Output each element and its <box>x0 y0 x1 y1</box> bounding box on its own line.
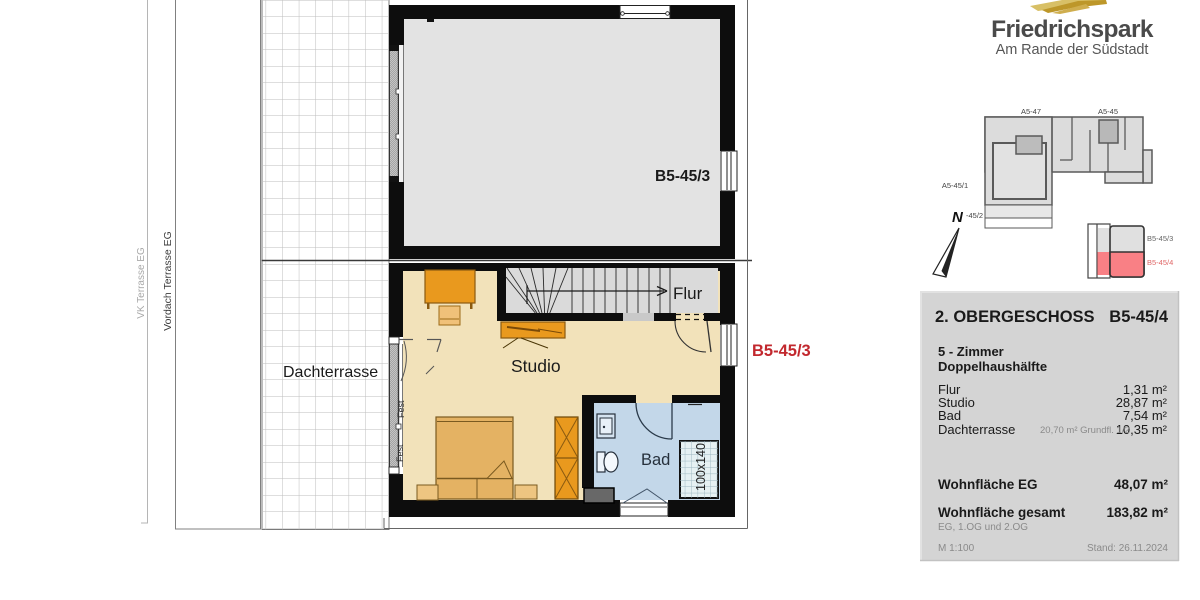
svg-text:A5-45: A5-45 <box>1098 107 1118 116</box>
svg-text:B5-45/4: B5-45/4 <box>1109 308 1169 326</box>
svg-text:A5-45/1: A5-45/1 <box>942 181 968 190</box>
svg-text:B5-45/3: B5-45/3 <box>752 342 811 360</box>
svg-text:M 1:100: M 1:100 <box>938 543 975 554</box>
svg-text:Studio: Studio <box>511 356 561 376</box>
svg-text:B5-45/4: B5-45/4 <box>1147 258 1173 267</box>
svg-text:EG, 1.OG und 2.OG: EG, 1.OG und 2.OG <box>938 522 1028 533</box>
svg-text:Wohnfläche gesamt: Wohnfläche gesamt <box>938 505 1066 520</box>
svg-text:N: N <box>952 209 964 226</box>
svg-text:Dachterrasse: Dachterrasse <box>938 422 1015 437</box>
svg-text:48,07 m²: 48,07 m² <box>1114 477 1169 492</box>
svg-text:2. OBERGESCHOSS: 2. OBERGESCHOSS <box>935 308 1095 326</box>
svg-text:B5-45/3: B5-45/3 <box>1147 234 1173 243</box>
svg-text:A5-47: A5-47 <box>1021 107 1041 116</box>
svg-text:Am Rande der Südstadt: Am Rande der Südstadt <box>996 42 1149 58</box>
svg-text:Bad: Bad <box>938 408 961 423</box>
svg-text:Flur: Flur <box>673 284 703 303</box>
svg-text:Vordach Terrasse EG: Vordach Terrasse EG <box>162 231 174 331</box>
svg-text:183,82 m²: 183,82 m² <box>1106 505 1168 520</box>
svg-text:Fest: Fest <box>395 444 405 462</box>
svg-text:20,70 m² Grundfl. 1/2: 20,70 m² Grundfl. 1/2 <box>1040 425 1130 436</box>
svg-text:100x140: 100x140 <box>694 443 708 491</box>
svg-text:Doppelhaushälfte: Doppelhaushälfte <box>938 359 1047 374</box>
svg-text:Wohnfläche EG: Wohnfläche EG <box>938 477 1038 492</box>
svg-text:7,54 m²: 7,54 m² <box>1123 408 1168 423</box>
svg-text:Fest: Fest <box>396 400 406 418</box>
svg-text:Dachterrasse: Dachterrasse <box>283 364 378 381</box>
svg-text:B5-45/3: B5-45/3 <box>655 168 711 185</box>
svg-text:Stand: 26.11.2024: Stand: 26.11.2024 <box>1087 543 1168 554</box>
svg-text:Bad: Bad <box>641 451 670 469</box>
svg-text:5 - Zimmer: 5 - Zimmer <box>938 344 1004 359</box>
svg-text:Friedrichspark: Friedrichspark <box>991 16 1154 43</box>
svg-text:VK Terrasse EG: VK Terrasse EG <box>136 247 147 319</box>
svg-text:-45/2: -45/2 <box>966 211 983 220</box>
